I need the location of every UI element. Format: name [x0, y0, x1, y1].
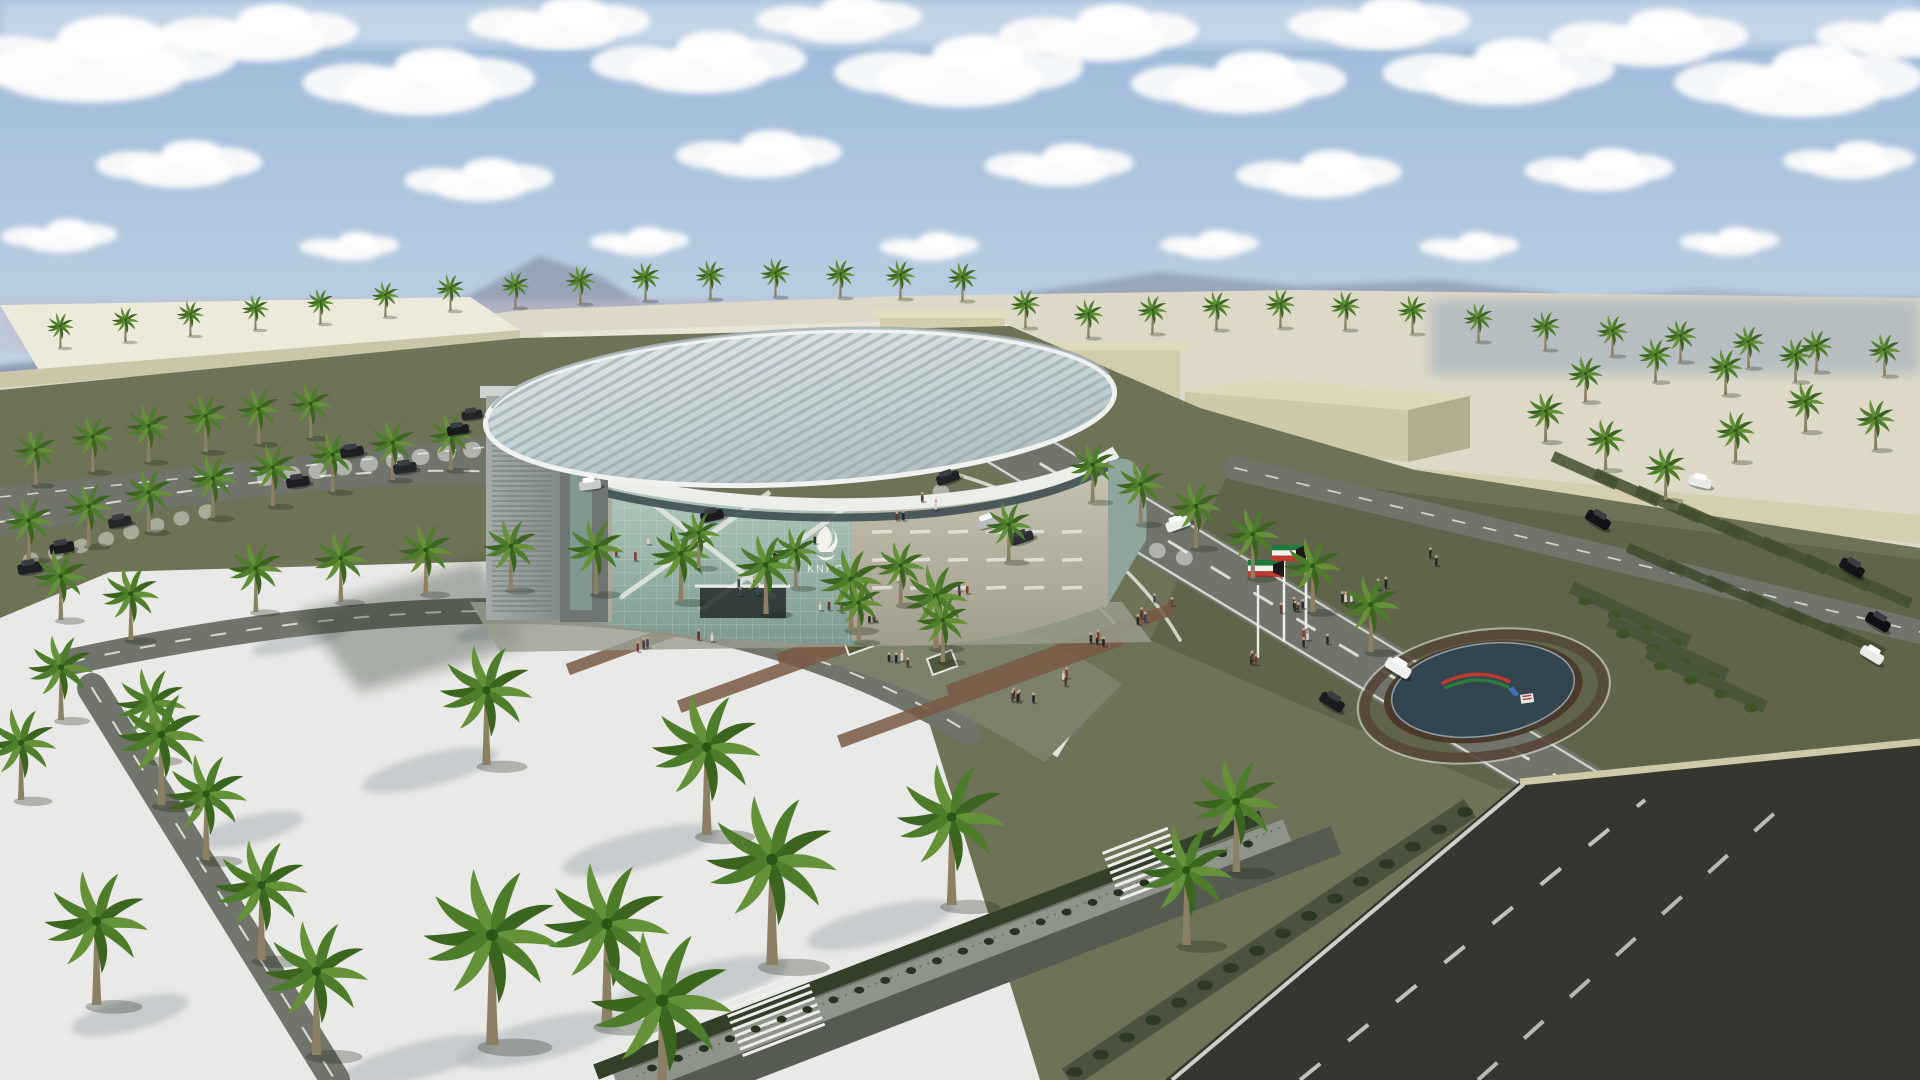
bush — [1010, 928, 1020, 935]
bush — [880, 977, 890, 984]
bush — [1275, 928, 1291, 938]
bush — [1093, 1050, 1109, 1060]
bush — [906, 967, 916, 974]
bush — [751, 1026, 761, 1033]
bush — [1036, 918, 1046, 925]
window-slit — [872, 530, 892, 534]
bush — [1714, 690, 1728, 699]
bush — [1119, 1032, 1135, 1042]
bush — [1249, 946, 1265, 956]
bush — [932, 957, 942, 964]
bush — [1171, 998, 1187, 1008]
bush — [1405, 842, 1421, 852]
window-slit — [1024, 586, 1044, 590]
window-slit — [1062, 558, 1082, 562]
bush — [984, 938, 994, 945]
window-slit — [910, 530, 930, 534]
bush — [647, 1065, 657, 1072]
bush — [777, 1016, 787, 1023]
bush — [802, 1006, 812, 1013]
bush — [1113, 889, 1123, 896]
window-slit — [1062, 530, 1082, 534]
scene-svg: KNPC — [0, 0, 1920, 1080]
bush — [1088, 899, 1098, 906]
bush — [725, 1035, 735, 1042]
bush — [1616, 630, 1630, 639]
bush — [1379, 859, 1395, 869]
window-slit — [872, 586, 892, 590]
bush — [1353, 876, 1369, 886]
bush — [958, 948, 968, 955]
bush — [1062, 909, 1072, 916]
bush — [854, 987, 864, 994]
window-slit — [948, 558, 968, 562]
rendering-canvas: KNPC — [0, 0, 1920, 1080]
bush — [1067, 1067, 1083, 1077]
bush — [1744, 704, 1758, 713]
bush — [1197, 980, 1213, 990]
bush — [828, 996, 838, 1003]
bush — [1145, 1015, 1161, 1025]
bush — [1243, 841, 1253, 848]
window-slit — [948, 530, 968, 534]
bush — [1578, 597, 1592, 606]
bush — [1327, 894, 1343, 904]
bush — [1654, 662, 1668, 671]
window-slit — [986, 586, 1006, 590]
bush — [699, 1045, 709, 1052]
window-slit — [1062, 586, 1082, 590]
bush — [1301, 911, 1317, 921]
window-slit — [986, 558, 1006, 562]
bush — [1684, 676, 1698, 685]
bush — [1431, 824, 1447, 834]
bush — [1457, 807, 1473, 817]
bush — [1223, 963, 1239, 973]
